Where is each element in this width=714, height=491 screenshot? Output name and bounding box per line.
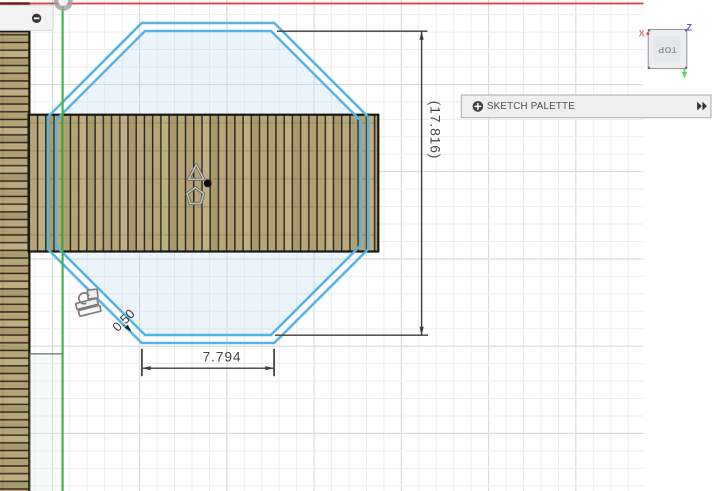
svg-text:SKETCH PALETTE: SKETCH PALETTE: [487, 101, 575, 112]
svg-text:X: X: [639, 28, 645, 38]
svg-text:(17.816): (17.816): [427, 101, 442, 160]
svg-text:7.794: 7.794: [202, 350, 241, 365]
svg-text:TOP: TOP: [658, 45, 677, 55]
svg-text:Z: Z: [687, 23, 693, 33]
